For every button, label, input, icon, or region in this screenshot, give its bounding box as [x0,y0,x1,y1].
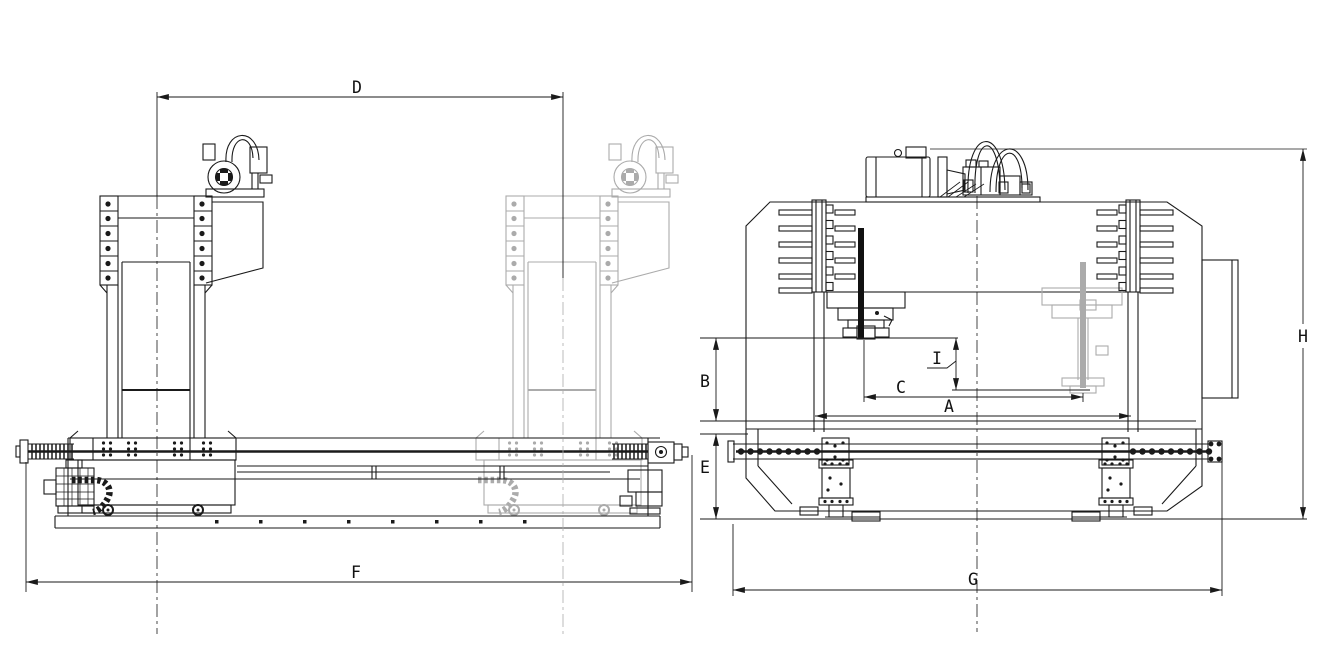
front-view: B E I C A G [700,142,1308,632]
front-body [746,202,1238,511]
dim-label-a: A [944,397,954,416]
clamp-rail-left [779,200,855,432]
dim-label-g: G [968,570,978,589]
dim-c: C [864,340,1083,402]
dim-f: F [26,455,692,592]
side-view: D F [16,78,692,634]
side-column [70,135,272,515]
dim-h: H [1298,149,1308,519]
clamp-rail-right [1097,200,1173,432]
support-leg-right [1072,460,1152,521]
torch-head-ghost [1042,262,1122,393]
travel-chain-bar [728,438,1222,465]
dim-label-f: F [351,563,361,582]
support-leg-left [800,460,880,521]
dim-i: I [927,338,1090,390]
front-motor-assembly [866,142,1307,202]
dim-label-c: C [896,378,906,397]
dim-g: G [733,462,1222,596]
machine-dimension-drawing: D F [0,0,1319,646]
dim-b: B [700,338,958,421]
dim-label-i: I [932,349,942,368]
dim-label-e: E [700,458,710,477]
technical-drawing-canvas: D F [0,0,1319,646]
dim-e: E [700,434,748,519]
dim-label-d: D [352,78,362,97]
torch-head [827,228,905,339]
dim-a: A [815,397,1131,416]
dim-label-h: H [1298,327,1308,346]
dim-label-b: B [700,372,710,391]
